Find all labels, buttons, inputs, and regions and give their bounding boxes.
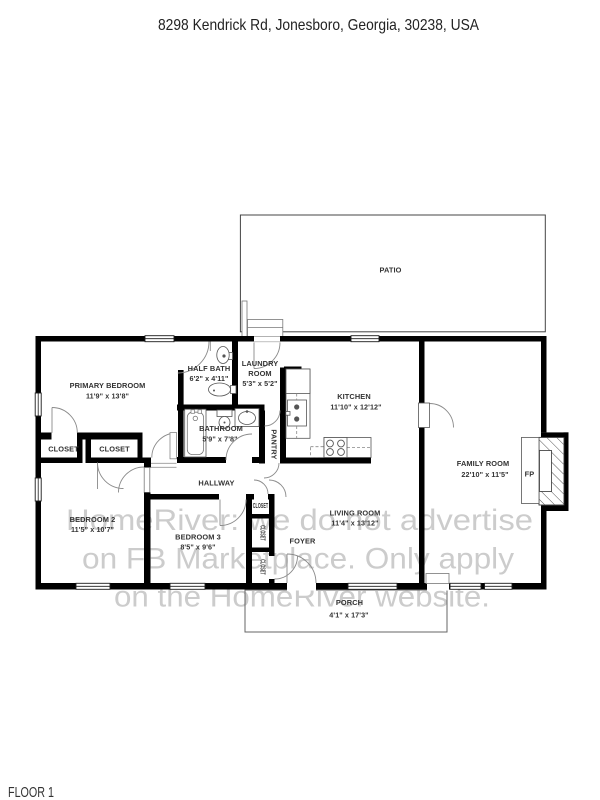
svg-text:5'9" x 7'8": 5'9" x 7'8" <box>202 435 237 444</box>
svg-text:PRIMARY BEDROOM: PRIMARY BEDROOM <box>70 381 146 390</box>
svg-text:BEDROOM 3: BEDROOM 3 <box>175 533 221 542</box>
svg-text:PATIO: PATIO <box>380 266 402 275</box>
svg-text:4'1" x 17'3": 4'1" x 17'3" <box>329 611 368 620</box>
svg-text:HALF BATH: HALF BATH <box>188 364 231 373</box>
svg-text:6'2" x 4'11": 6'2" x 4'11" <box>189 374 228 383</box>
svg-text:CLOSET: CLOSET <box>259 525 268 541</box>
svg-text:11'10" x 12'12": 11'10" x 12'12" <box>330 403 381 412</box>
svg-text:KITCHEN: KITCHEN <box>337 392 371 401</box>
svg-text:CLOSET: CLOSET <box>259 559 268 575</box>
svg-text:11'5" x 10'7": 11'5" x 10'7" <box>71 525 114 534</box>
svg-text:CLOSET: CLOSET <box>253 501 269 510</box>
svg-text:CLOSET: CLOSET <box>99 445 130 454</box>
svg-text:LAUNDRY: LAUNDRY <box>242 359 279 368</box>
svg-text:CLOSET: CLOSET <box>48 445 79 454</box>
svg-text:HomeRiver: we do not advertise: HomeRiver: we do not advertise <box>66 504 533 537</box>
svg-text:BATHROOM: BATHROOM <box>199 424 243 433</box>
svg-text:FOYER: FOYER <box>290 537 317 546</box>
svg-text:11'4" x 13'12": 11'4" x 13'12" <box>331 519 378 528</box>
svg-text:HALLWAY: HALLWAY <box>198 479 234 488</box>
svg-text:BEDROOM 2: BEDROOM 2 <box>70 515 116 524</box>
svg-text:8'5" x 9'6": 8'5" x 9'6" <box>180 543 215 552</box>
svg-text:LIVING ROOM: LIVING ROOM <box>330 509 381 518</box>
svg-text:22'10" x 11'5": 22'10" x 11'5" <box>461 470 508 479</box>
svg-text:8298 Kendrick Rd, Jonesboro, G: 8298 Kendrick Rd, Jonesboro, Georgia, 30… <box>158 17 479 34</box>
svg-text:FLOOR 1: FLOOR 1 <box>8 785 54 800</box>
svg-text:PANTRY: PANTRY <box>270 429 279 459</box>
svg-text:FAMILY ROOM: FAMILY ROOM <box>457 459 509 468</box>
svg-text:ROOM: ROOM <box>248 369 271 378</box>
svg-text:5'3" x 5'2": 5'3" x 5'2" <box>242 379 277 388</box>
svg-text:11'9" x 13'8": 11'9" x 13'8" <box>86 392 129 401</box>
svg-text:PORCH: PORCH <box>336 598 363 607</box>
svg-text:FP: FP <box>525 470 535 479</box>
